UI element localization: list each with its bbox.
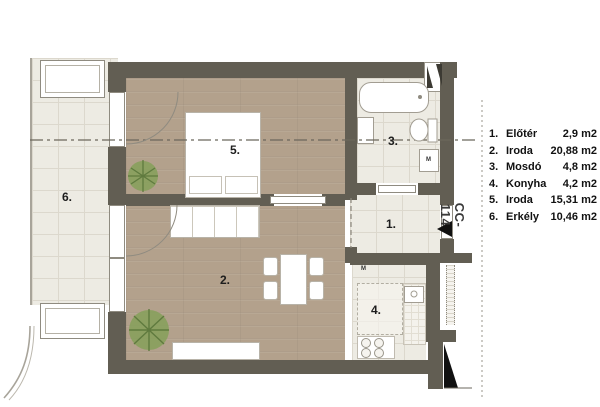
legend-row: 3. Mosdó 4,8 m2: [489, 159, 597, 176]
sideboard: [172, 342, 260, 360]
balcony-planter-bottom: [40, 303, 105, 339]
bathtub: [359, 82, 429, 113]
floor-plan: M M: [0, 0, 600, 407]
wall-bottom-right-h: [426, 330, 456, 342]
balcony-railing-curve: [4, 326, 30, 398]
bathroom-sink: [357, 117, 374, 144]
legend-row: 1. Előtér 2,9 m2: [489, 126, 597, 143]
wall-bottom: [108, 360, 443, 374]
balcony-door-office-leaf: [109, 92, 125, 147]
wall-top: [108, 62, 457, 78]
corridor-parapet: [446, 265, 455, 325]
wall-bathroom-left: [345, 62, 357, 190]
planter-inner: [45, 308, 100, 334]
kitchen-sink: [404, 286, 424, 303]
legend-room-name: Iroda: [506, 143, 551, 160]
unit-code-label: CC-114: [452, 192, 466, 238]
wall-kitchen-right: [426, 253, 440, 342]
legend-room-number: 1.: [489, 126, 506, 143]
wall-entry-kitchen: [350, 253, 426, 265]
room-label-bath: 3.: [388, 134, 398, 148]
balcony-planter-top: [40, 60, 105, 98]
legend-room-number: 4.: [489, 176, 506, 193]
window-living-balcony: [109, 258, 125, 312]
washing-machine-label: M: [426, 157, 431, 163]
room-label-balcony: 6.: [62, 190, 72, 204]
sofa: [170, 205, 260, 238]
wall-bottom-right-v: [428, 342, 443, 389]
legend-room-area: 10,46 m2: [551, 209, 597, 226]
legend-room-number: 2.: [489, 143, 506, 160]
dining-chair: [263, 281, 278, 300]
legend-room-area: 15,31 m2: [551, 192, 597, 209]
legend-room-area: 4,8 m2: [563, 159, 597, 176]
legend-room-number: 5.: [489, 192, 506, 209]
legend-room-number: 3.: [489, 159, 506, 176]
dining-chair: [263, 257, 278, 276]
kitchen-m-label: M: [361, 266, 366, 272]
bed-pillow-left: [189, 176, 222, 194]
dining-chair: [309, 257, 324, 276]
room-label-kitchen: 4.: [371, 303, 381, 317]
room-label-office: 5.: [230, 143, 240, 157]
wall-right-below-door: [440, 239, 454, 253]
legend-row: 5. Iroda 15,31 m2: [489, 192, 597, 209]
legend-room-number: 6.: [489, 209, 506, 226]
legend-room-name: Konyha: [506, 176, 563, 193]
legend-row: 2. Iroda 20,88 m2: [489, 143, 597, 160]
wall-left-1: [108, 62, 126, 92]
dining-chair: [309, 281, 324, 300]
wall-left-2: [108, 147, 126, 205]
legend-row: 6. Erkély 10,46 m2: [489, 209, 597, 226]
balcony-railing-curve-inner: [9, 326, 34, 400]
corner-wedge-icon: [444, 344, 458, 388]
legend-room-name: Mosdó: [506, 159, 563, 176]
wall-spur-right: [440, 253, 472, 263]
legend-room-area: 20,88 m2: [551, 143, 597, 160]
bathroom-door-leaf: [378, 185, 416, 193]
legend-row: 4. Konyha 4,2 m2: [489, 176, 597, 193]
office-sliding-door-leaf: [270, 196, 326, 204]
legend-room-area: 4,2 m2: [563, 176, 597, 193]
legend-room-name: Erkély: [506, 209, 551, 226]
room-label-entry: 1.: [386, 217, 396, 231]
legend-room-area: 2,9 m2: [563, 126, 597, 143]
room-label-living: 2.: [220, 273, 230, 287]
room-legend: 1. Előtér 2,9 m2 2. Iroda 20,88 m2 3. Mo…: [489, 126, 597, 225]
balcony-door-living-leaf: [109, 205, 125, 258]
dining-table: [280, 254, 307, 305]
bed-pillow-right: [225, 176, 258, 194]
legend-room-name: Előtér: [506, 126, 563, 143]
stove: [357, 336, 395, 359]
legend-room-name: Iroda: [506, 192, 551, 209]
wall-right-top: [440, 62, 454, 205]
wall-entry-stub-top: [345, 183, 357, 200]
planter-inner: [45, 65, 100, 93]
